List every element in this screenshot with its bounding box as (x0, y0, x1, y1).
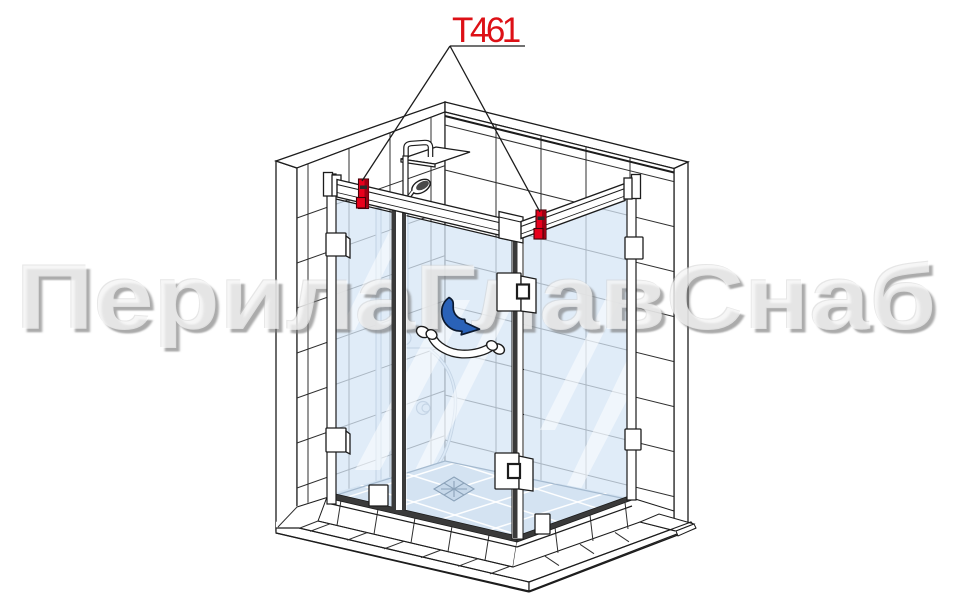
svg-text:T461: T461 (452, 11, 520, 50)
svg-text:ПерилаГлавСнаб: ПерилаГлавСнаб (16, 247, 936, 350)
